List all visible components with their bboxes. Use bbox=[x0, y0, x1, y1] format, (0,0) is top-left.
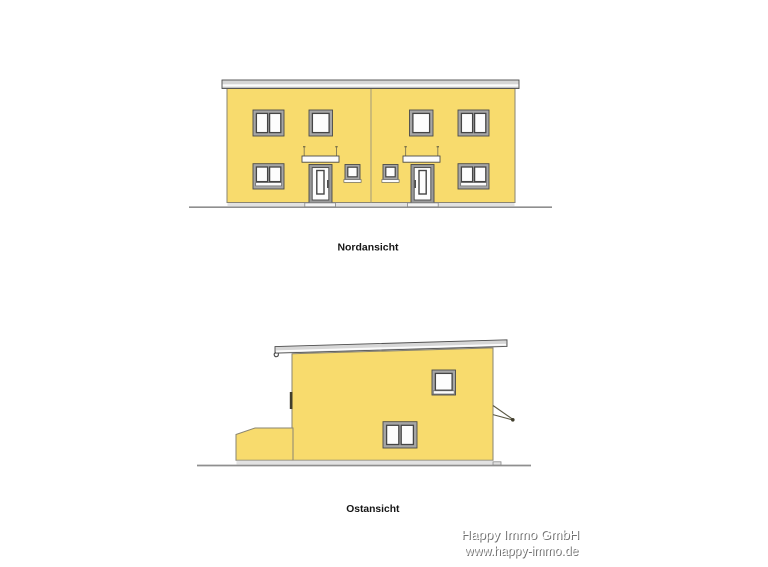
svg-text:Happy Immo GmbH: Happy Immo GmbH bbox=[461, 527, 579, 542]
svg-text:Nordansicht: Nordansicht bbox=[338, 241, 399, 253]
svg-text:www.happy-immo.de: www.happy-immo.de bbox=[464, 543, 578, 558]
svg-text:Ostansicht: Ostansicht bbox=[346, 503, 400, 515]
